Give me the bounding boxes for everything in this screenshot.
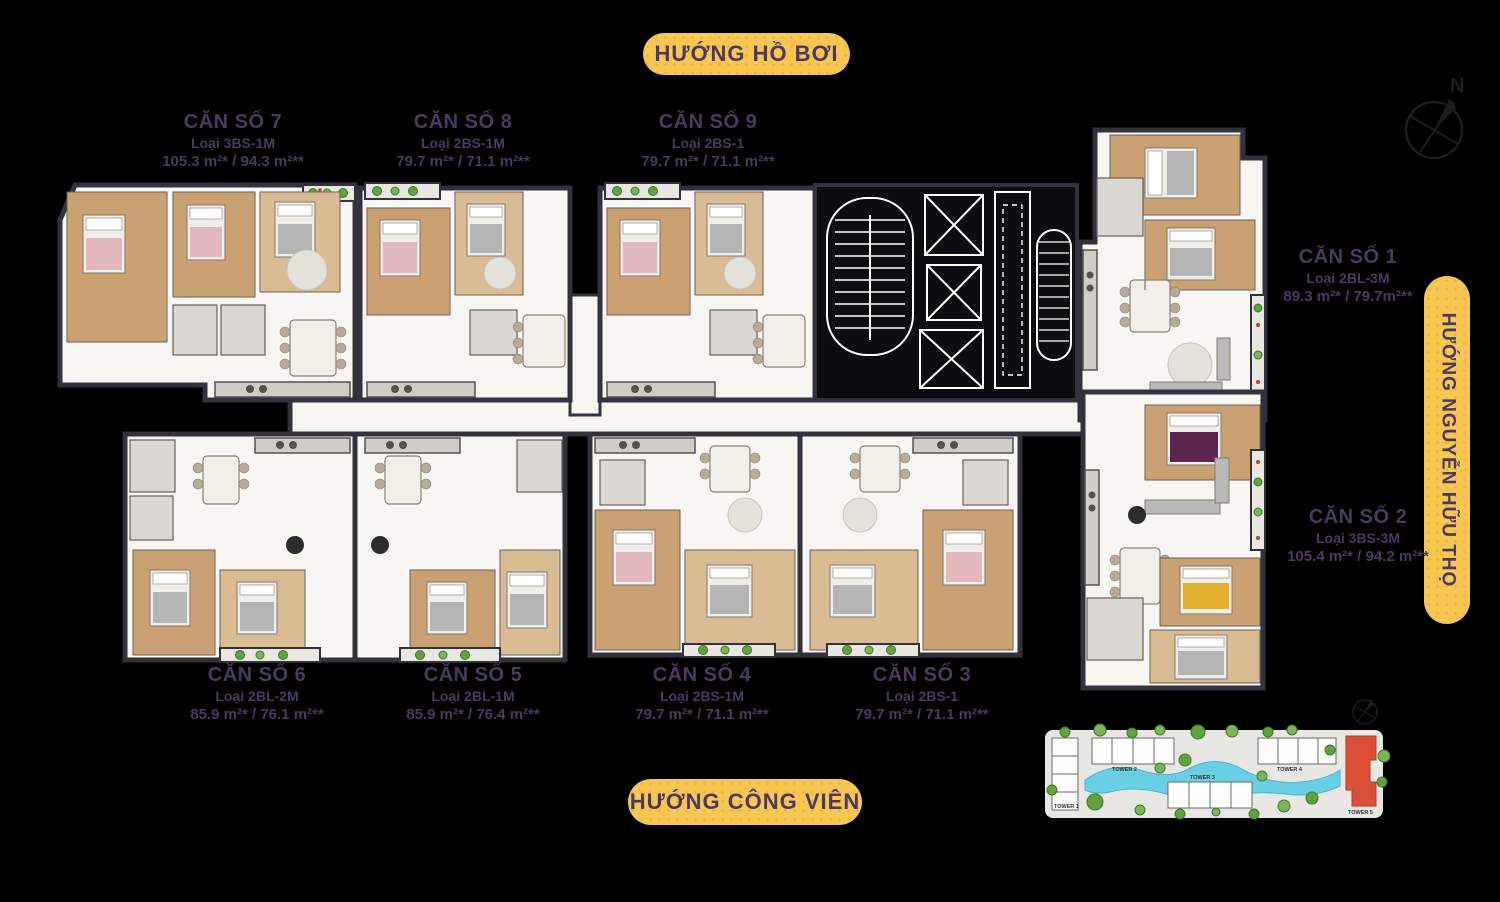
unit-2-label: CĂN SỐ 2 Loại 3BS-3M 105.4 m²* / 94.2 m²… [1253, 505, 1463, 566]
pool-direction-badge: HƯỚNG HỒ BƠI [643, 33, 850, 75]
unit-3-area: 79.7 m²* / 71.1 m²** [817, 706, 1027, 725]
unit-2-area: 105.4 m²* / 94.2 m²** [1253, 548, 1463, 567]
unit-6-area: 85.9 m²* / 76.1 m²** [152, 706, 362, 725]
svg-text:TOWER 4: TOWER 4 [1277, 767, 1303, 773]
park-direction-label: HƯỚNG CÔNG VIÊN [630, 789, 860, 815]
unit-5-area: 85.9 m²* / 76.4 m²** [368, 706, 578, 725]
unit-5-plan [355, 434, 565, 662]
unit-4-plan [590, 434, 800, 657]
unit-1-plan [1080, 130, 1265, 420]
svg-text:TOWER 1: TOWER 1 [1054, 804, 1079, 810]
unit-4-area: 79.7 m²* / 71.1 m²** [597, 706, 807, 725]
tower-1-footprint: TOWER 1 [1052, 738, 1079, 810]
floor-plan-drawing [55, 120, 1275, 700]
street-direction-badge: HƯỚNG NGUYỄN HỮU THỌ [1424, 276, 1470, 624]
unit-7-plan [60, 185, 355, 400]
unit-3-plan [800, 434, 1020, 657]
site-plan: TOWER 1 TOWER 2 TOWER 3 TOWER 4 TOWER 5 [1040, 690, 1400, 860]
service-core [815, 185, 1077, 400]
unit-2-name: CĂN SỐ 2 [1253, 505, 1463, 530]
unit-8-plan [360, 183, 570, 400]
svg-text:TOWER 3: TOWER 3 [1190, 775, 1215, 781]
compass-icon: N [1398, 68, 1478, 168]
pool-direction-label: HƯỚNG HỒ BƠI [655, 41, 839, 67]
compass-north-label: N [1450, 75, 1464, 97]
site-plan-compass-icon [1353, 699, 1377, 724]
floorplan-page: HƯỚNG HỒ BƠI HƯỚNG CÔNG VIÊN HƯỚNG NGUYỄ… [0, 0, 1500, 902]
unit-2-type: Loại 3BS-3M [1253, 530, 1463, 548]
unit-6-plan [125, 434, 355, 662]
park-direction-badge: HƯỚNG CÔNG VIÊN [628, 779, 862, 825]
unit-9-plan [600, 183, 815, 400]
unit-2-plan [1083, 392, 1265, 688]
svg-text:TOWER 2: TOWER 2 [1112, 767, 1137, 773]
svg-text:TOWER 5: TOWER 5 [1348, 810, 1373, 816]
